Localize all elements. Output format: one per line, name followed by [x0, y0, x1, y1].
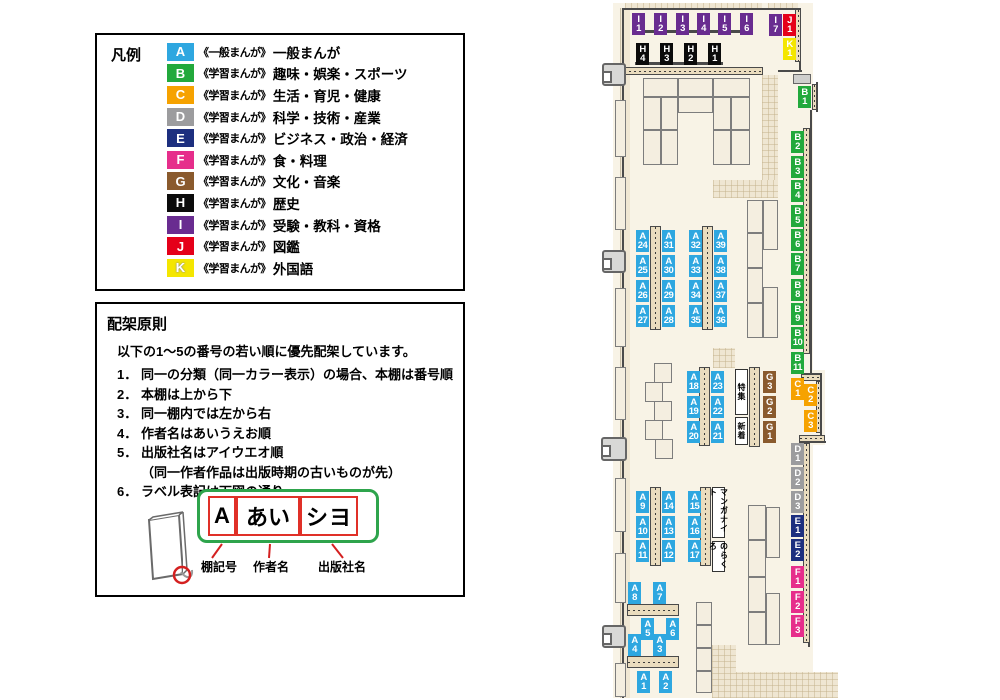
- shelf-label-F3: F3: [791, 615, 804, 637]
- shelf-label-number: 29: [664, 291, 674, 301]
- shelf-label-A39: A39: [714, 230, 727, 252]
- shelf-label-G3: G3: [763, 371, 776, 393]
- shelf-label-number: 21: [713, 432, 723, 442]
- shelf-label-C3: C3: [804, 410, 817, 432]
- aisle-shelf-strip: [803, 128, 810, 354]
- shelf-label-number: 35: [691, 316, 701, 326]
- shelf-label-number: 4: [795, 191, 800, 201]
- shelf-label-A9: A9: [636, 491, 649, 513]
- shelf-label-number: 17: [690, 551, 700, 561]
- wall: [622, 8, 800, 10]
- shelf-label-A35: A35: [689, 305, 702, 327]
- shelf-label-number: 1: [787, 25, 792, 35]
- shelf-block: [643, 78, 678, 97]
- shelf-label-F2: F2: [791, 591, 804, 613]
- shelf-label-number: 28: [664, 316, 674, 326]
- shelf-block: [615, 478, 626, 532]
- shelf-label-number: 4: [701, 24, 706, 34]
- shelf-label-A15: A15: [688, 491, 701, 513]
- shelf-label-I7: I7: [769, 14, 782, 36]
- aisle-shelf-strip: [801, 374, 821, 381]
- shelf-label-number: 1: [641, 682, 646, 692]
- shelf-label-A7: A7: [653, 582, 666, 604]
- shelf-block: [615, 367, 626, 420]
- shelf-label-number: 3: [664, 54, 669, 64]
- shelf-label-number: 6: [670, 629, 675, 639]
- shelf-block: [654, 401, 672, 421]
- shelf-label-A22: A22: [711, 396, 724, 418]
- shelf-label-A3: A3: [653, 634, 666, 656]
- shelf-label-B2: B2: [791, 131, 804, 153]
- shelf-label-number: 9: [795, 314, 800, 324]
- shelf-block: [763, 287, 778, 338]
- section-box-tokushu: 特集: [735, 369, 748, 415]
- shelf-label-number: 1: [636, 24, 641, 34]
- shelf-block: [654, 363, 672, 383]
- shelf-label-H2: H2: [684, 43, 697, 65]
- shelf-block: [748, 505, 766, 540]
- shelf-label-F1: F1: [791, 566, 804, 588]
- shelf-block: [696, 602, 712, 625]
- shelf-label-number: 23: [713, 382, 723, 392]
- shelf-label-number: 16: [690, 527, 700, 537]
- shelf-label-number: 5: [645, 629, 650, 639]
- shelf-label-H1: H1: [708, 43, 721, 65]
- aisle-shelf-strip: [627, 656, 679, 668]
- door: [602, 250, 626, 273]
- shelf-label-B7: B7: [791, 253, 804, 275]
- shelf-label-A25: A25: [636, 255, 649, 277]
- shelf-label-number: 15: [690, 502, 700, 512]
- walkway-hatch: [712, 672, 838, 698]
- shelf-block: [747, 233, 763, 268]
- shelf-block: [645, 382, 663, 402]
- shelf-label-number: 1: [787, 49, 792, 59]
- shelf-label-number: 2: [795, 550, 800, 560]
- shelf-label-number: 2: [767, 407, 772, 417]
- shelf-label-A30: A30: [662, 255, 675, 277]
- shelf-label-A33: A33: [689, 255, 702, 277]
- shelf-block: [713, 78, 750, 97]
- shelf-label-number: 2: [808, 395, 813, 405]
- shelf-block: [655, 439, 673, 459]
- shelf-label-B1: B1: [798, 86, 811, 108]
- wall-step: [793, 74, 811, 84]
- section-box-shinchaku: 新着: [735, 417, 748, 445]
- shelf-label-A29: A29: [662, 280, 675, 302]
- shelf-label-J1: J1: [783, 14, 796, 36]
- shelf-label-number: 3: [795, 626, 800, 636]
- shelf-block: [748, 540, 766, 577]
- shelf-block: [747, 268, 763, 303]
- shelf-label-number: 22: [713, 407, 723, 417]
- shelf-label-number: 24: [638, 241, 648, 251]
- shelf-label-B5: B5: [791, 205, 804, 227]
- shelf-block: [696, 671, 712, 693]
- shelf-label-A1: A1: [637, 671, 650, 693]
- shelf-label-number: 3: [657, 645, 662, 655]
- shelf-block: [748, 577, 766, 612]
- shelf-label-D3: D3: [791, 491, 804, 513]
- shelf-label-B8: B8: [791, 279, 804, 301]
- aisle-shelf-strip: [627, 604, 679, 616]
- shelf-label-number: 19: [689, 407, 699, 417]
- shelf-label-A6: A6: [666, 618, 679, 640]
- shelf-label-A14: A14: [662, 491, 675, 513]
- manga-floor-map-poster: 凡例 A《一般まんが》一般まんがB《学習まんが》趣味・娯楽・スポーツC《学習まん…: [0, 0, 1000, 700]
- shelf-label-number: 1: [795, 389, 800, 399]
- shelf-block: [643, 130, 661, 165]
- shelf-label-number: 31: [664, 241, 674, 251]
- shelf-block: [615, 100, 626, 157]
- shelf-label-H4: H4: [636, 43, 649, 65]
- shelf-label-number: 9: [640, 502, 645, 512]
- shelf-label-A26: A26: [636, 280, 649, 302]
- shelf-label-number: 1: [795, 526, 800, 536]
- shelf-label-E2: E2: [791, 539, 804, 561]
- aisle-shelf-strip: [650, 487, 661, 566]
- shelf-label-number: 10: [793, 338, 803, 348]
- shelf-label-number: 3: [808, 421, 813, 431]
- shelf-label-D2: D2: [791, 467, 804, 489]
- shelf-label-number: 1: [767, 432, 772, 442]
- shelf-label-number: 36: [716, 316, 726, 326]
- door: [602, 63, 626, 86]
- shelf-label-number: 7: [657, 593, 662, 603]
- shelf-label-A13: A13: [662, 516, 675, 538]
- shelf-label-number: 5: [722, 24, 727, 34]
- shelf-label-number: 2: [688, 54, 693, 64]
- wall: [810, 110, 812, 374]
- shelf-label-A27: A27: [636, 305, 649, 327]
- shelf-label-A8: A8: [628, 582, 641, 604]
- shelf-label-number: 12: [664, 551, 674, 561]
- shelf-label-B9: B9: [791, 303, 804, 325]
- shelf-label-A36: A36: [714, 305, 727, 327]
- shelf-label-E1: E1: [791, 515, 804, 537]
- aisle-shelf-strip: [699, 367, 710, 446]
- shelf-block: [645, 420, 663, 440]
- shelf-label-number: 34: [691, 291, 701, 301]
- shelf-label-number: 32: [691, 241, 701, 251]
- shelf-label-number: 2: [795, 478, 800, 488]
- shelf-block: [696, 648, 712, 671]
- shelf-block: [763, 200, 778, 250]
- shelf-label-number: 6: [744, 24, 749, 34]
- shelf-label-B10: B10: [791, 327, 804, 349]
- shelf-label-H3: H3: [660, 43, 673, 65]
- shelf-label-number: 1: [712, 54, 717, 64]
- shelf-label-K1: K1: [783, 38, 796, 60]
- aisle-shelf-strip: [749, 367, 760, 447]
- shelf-block: [766, 507, 780, 558]
- shelf-label-number: 2: [658, 24, 663, 34]
- shelf-label-number: 1: [795, 454, 800, 464]
- shelf-block: [731, 97, 750, 130]
- shelf-label-number: 8: [795, 290, 800, 300]
- shelf-block: [696, 625, 712, 648]
- shelf-label-number: 1: [795, 577, 800, 587]
- shelf-block: [643, 97, 661, 130]
- shelf-label-number: 30: [664, 266, 674, 276]
- aisle-shelf-strip: [623, 67, 763, 75]
- walkway-hatch: [762, 75, 778, 181]
- shelf-label-A38: A38: [714, 255, 727, 277]
- shelf-label-I2: I2: [654, 13, 667, 35]
- wall: [778, 70, 802, 72]
- shelf-label-number: 7: [773, 25, 778, 35]
- shelf-label-A16: A16: [688, 516, 701, 538]
- shelf-label-number: 39: [716, 241, 726, 251]
- shelf-label-A32: A32: [689, 230, 702, 252]
- shelf-label-number: 3: [680, 24, 685, 34]
- shelf-label-A12: A12: [662, 540, 675, 562]
- shelf-label-number: 2: [795, 602, 800, 612]
- shelf-label-number: 1: [802, 97, 807, 107]
- shelf-label-number: 6: [795, 240, 800, 250]
- shelf-label-number: 13: [664, 527, 674, 537]
- walkway-hatch: [713, 180, 778, 198]
- shelf-label-C1: C1: [791, 378, 804, 400]
- door: [601, 437, 627, 461]
- shelf-label-A24: A24: [636, 230, 649, 252]
- aisle-shelf-strip: [702, 226, 713, 330]
- shelf-block: [747, 303, 763, 338]
- shelf-label-number: 11: [638, 551, 647, 561]
- shelf-label-number: 27: [638, 316, 648, 326]
- shelf-label-number: 2: [663, 682, 668, 692]
- shelf-block: [661, 97, 678, 130]
- shelf-label-A17: A17: [688, 540, 701, 562]
- shelf-label-A18: A18: [687, 371, 700, 393]
- shelf-label-A19: A19: [687, 396, 700, 418]
- shelf-label-C2: C2: [804, 384, 817, 406]
- shelf-label-number: 4: [640, 54, 645, 64]
- shelf-label-A4: A4: [628, 634, 641, 656]
- shelf-label-number: 20: [689, 432, 699, 442]
- shelf-label-B6: B6: [791, 229, 804, 251]
- shelf-block: [615, 288, 626, 347]
- shelf-block: [678, 78, 713, 97]
- wall: [632, 30, 752, 33]
- shelf-label-number: 33: [691, 266, 701, 276]
- shelf-label-I5: I5: [718, 13, 731, 35]
- shelf-label-number: 8: [632, 593, 637, 603]
- shelf-label-G2: G2: [763, 396, 776, 418]
- shelf-label-A28: A28: [662, 305, 675, 327]
- aisle-shelf-strip: [803, 443, 810, 643]
- shelf-block: [678, 97, 713, 113]
- shelf-block: [615, 177, 626, 230]
- shelf-label-D1: D1: [791, 443, 804, 465]
- shelf-label-A34: A34: [689, 280, 702, 302]
- shelf-block: [766, 593, 780, 645]
- shelf-label-A23: A23: [711, 371, 724, 393]
- shelf-label-B3: B3: [791, 156, 804, 178]
- shelf-block: [748, 612, 766, 645]
- shelf-label-I3: I3: [676, 13, 689, 35]
- shelf-label-A11: A11: [636, 540, 649, 562]
- shelf-label-I1: I1: [632, 13, 645, 35]
- shelf-block: [713, 97, 731, 130]
- aisle-shelf-strip: [799, 435, 825, 442]
- shelf-block: [661, 130, 678, 165]
- shelf-label-number: 11: [793, 363, 802, 373]
- aisle-shelf-strip: [812, 84, 817, 110]
- shelf-label-number: 38: [716, 266, 726, 276]
- shelf-block: [615, 663, 626, 697]
- section-box-norakuro: のらくろ: [712, 541, 725, 572]
- shelf-label-number: 4: [632, 645, 637, 655]
- shelf-label-number: 14: [664, 502, 674, 512]
- shelf-label-number: 26: [638, 291, 648, 301]
- shelf-label-number: 2: [795, 142, 800, 152]
- section-box-manga-night: マンガナイト: [712, 487, 725, 538]
- shelf-label-G1: G1: [763, 421, 776, 443]
- shelf-label-I6: I6: [740, 13, 753, 35]
- shelf-block: [615, 553, 626, 603]
- shelf-label-A2: A2: [659, 671, 672, 693]
- shelf-block: [747, 200, 763, 233]
- shelf-label-A10: A10: [636, 516, 649, 538]
- shelf-label-A20: A20: [687, 421, 700, 443]
- shelf-label-number: 18: [689, 382, 699, 392]
- shelf-label-B11: B11: [791, 352, 804, 374]
- shelf-label-I4: I4: [697, 13, 710, 35]
- shelf-label-number: 3: [767, 382, 772, 392]
- shelf-label-A37: A37: [714, 280, 727, 302]
- floor-map: I1I2I3I4I5I6I7J1K1H4H3H2H1B1B2B3B4B5B6B7…: [0, 0, 1000, 700]
- shelf-label-number: 3: [795, 167, 800, 177]
- shelf-block: [713, 130, 731, 165]
- shelf-label-number: 7: [795, 264, 800, 274]
- door: [602, 625, 626, 648]
- shelf-label-A21: A21: [711, 421, 724, 443]
- shelf-label-number: 10: [638, 527, 648, 537]
- shelf-label-A31: A31: [662, 230, 675, 252]
- shelf-label-number: 3: [795, 502, 800, 512]
- shelf-label-number: 5: [795, 216, 800, 226]
- aisle-shelf-strip: [650, 226, 661, 330]
- shelf-label-B4: B4: [791, 180, 804, 202]
- shelf-label-number: 25: [638, 266, 648, 276]
- shelf-label-number: 37: [716, 291, 726, 301]
- shelf-block: [731, 130, 750, 165]
- walkway-hatch: [713, 348, 735, 368]
